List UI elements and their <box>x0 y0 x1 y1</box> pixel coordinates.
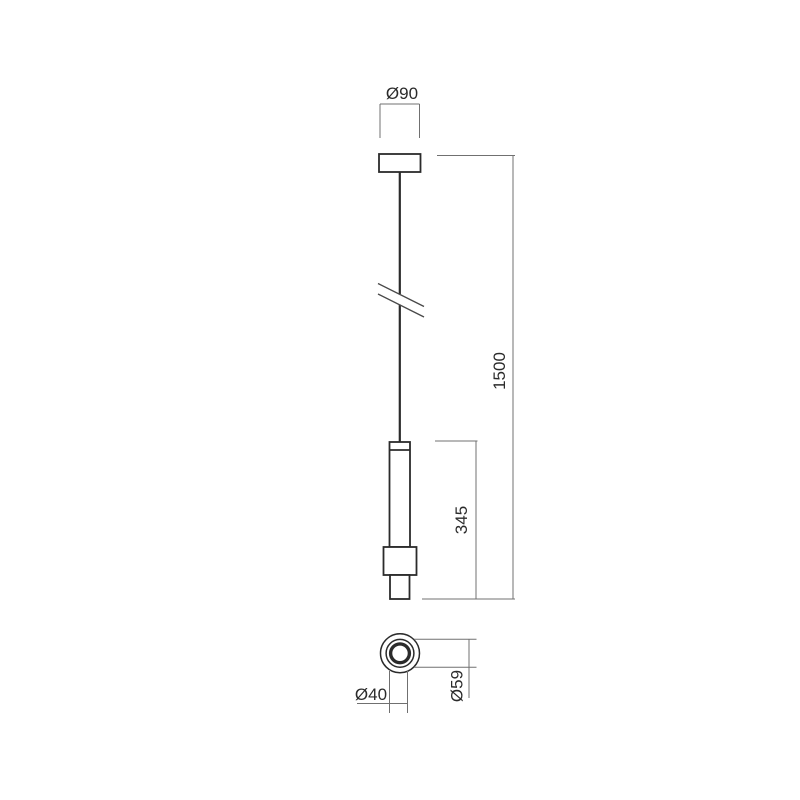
dim-label-canopy-diameter: Ø90 <box>386 84 418 103</box>
lamp-body <box>384 442 417 599</box>
ceiling-canopy <box>379 154 421 172</box>
break-stroke-lower <box>378 294 424 317</box>
front-view: Ø90 1500 345 <box>378 84 515 599</box>
dim-label-drop-length: 1500 <box>490 352 509 390</box>
inner-ring <box>391 644 410 663</box>
dimension-body-outer-diameter: Ø59 <box>414 639 477 702</box>
dimension-canopy-diameter: Ø90 <box>380 84 420 138</box>
break-stroke-upper <box>378 284 424 307</box>
dimension-body-inner-diameter: Ø40 <box>355 671 408 713</box>
pendant-lamp-technical-drawing: Ø90 1500 345 Ø59 <box>0 0 800 800</box>
lamp-tube <box>390 442 411 547</box>
cable-break-symbol <box>378 284 424 318</box>
lamp-lower-tube <box>390 575 410 599</box>
dim-label-body-inner-diameter: Ø40 <box>355 685 387 704</box>
dim-label-body-height: 345 <box>452 506 471 534</box>
lamp-socket-block <box>384 547 417 575</box>
dim-label-body-outer-diameter: Ø59 <box>448 670 467 702</box>
dimension-body-height: 345 <box>435 441 478 599</box>
bottom-view: Ø59 Ø40 <box>355 634 477 713</box>
